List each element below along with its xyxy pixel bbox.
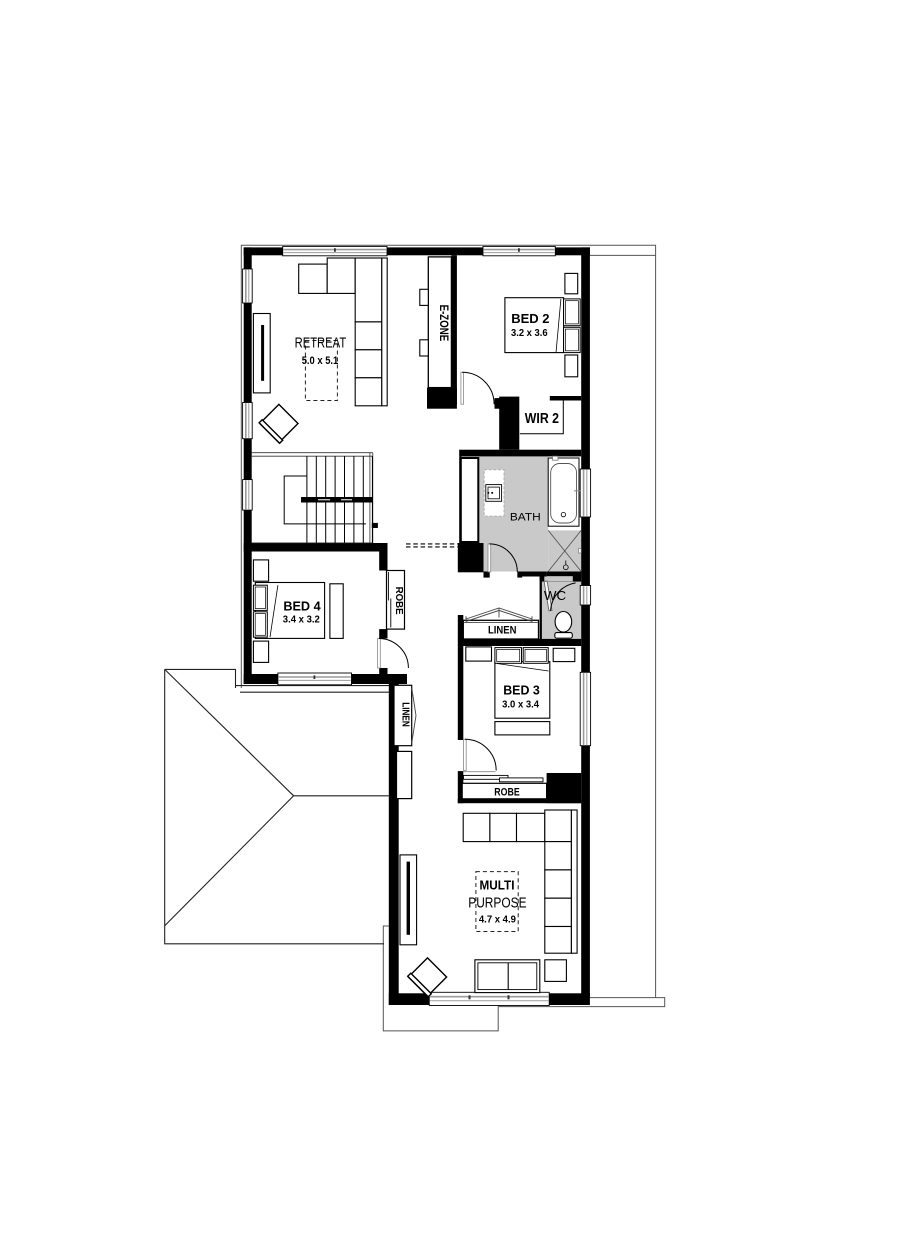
svg-text:WC: WC — [544, 588, 567, 603]
svg-text:ROBE: ROBE — [393, 587, 405, 615]
svg-text:3.2 x 3.6: 3.2 x 3.6 — [511, 327, 548, 339]
svg-text:BATH: BATH — [510, 511, 541, 523]
svg-text:BED 2: BED 2 — [511, 312, 549, 326]
svg-text:5.0 x 5.1: 5.0 x 5.1 — [302, 355, 339, 367]
svg-text:BED 3: BED 3 — [503, 683, 540, 697]
svg-text:BED 4: BED 4 — [283, 599, 320, 613]
svg-text:MULTI: MULTI — [480, 877, 515, 892]
svg-text:4.7 x 4.9: 4.7 x 4.9 — [479, 914, 516, 926]
svg-text:LINEN: LINEN — [399, 702, 410, 727]
svg-text:3.4 x 3.2: 3.4 x 3.2 — [283, 614, 320, 626]
svg-text:RETREAT: RETREAT — [295, 336, 347, 352]
svg-text:E-ZONE: E-ZONE — [437, 305, 451, 342]
svg-text:3.0 x 3.4: 3.0 x 3.4 — [502, 699, 539, 711]
svg-text:ROBE: ROBE — [494, 786, 520, 798]
svg-text:PURPOSE: PURPOSE — [468, 896, 526, 912]
svg-text:LINEN: LINEN — [488, 624, 516, 636]
svg-text:WIR 2: WIR 2 — [525, 410, 559, 427]
